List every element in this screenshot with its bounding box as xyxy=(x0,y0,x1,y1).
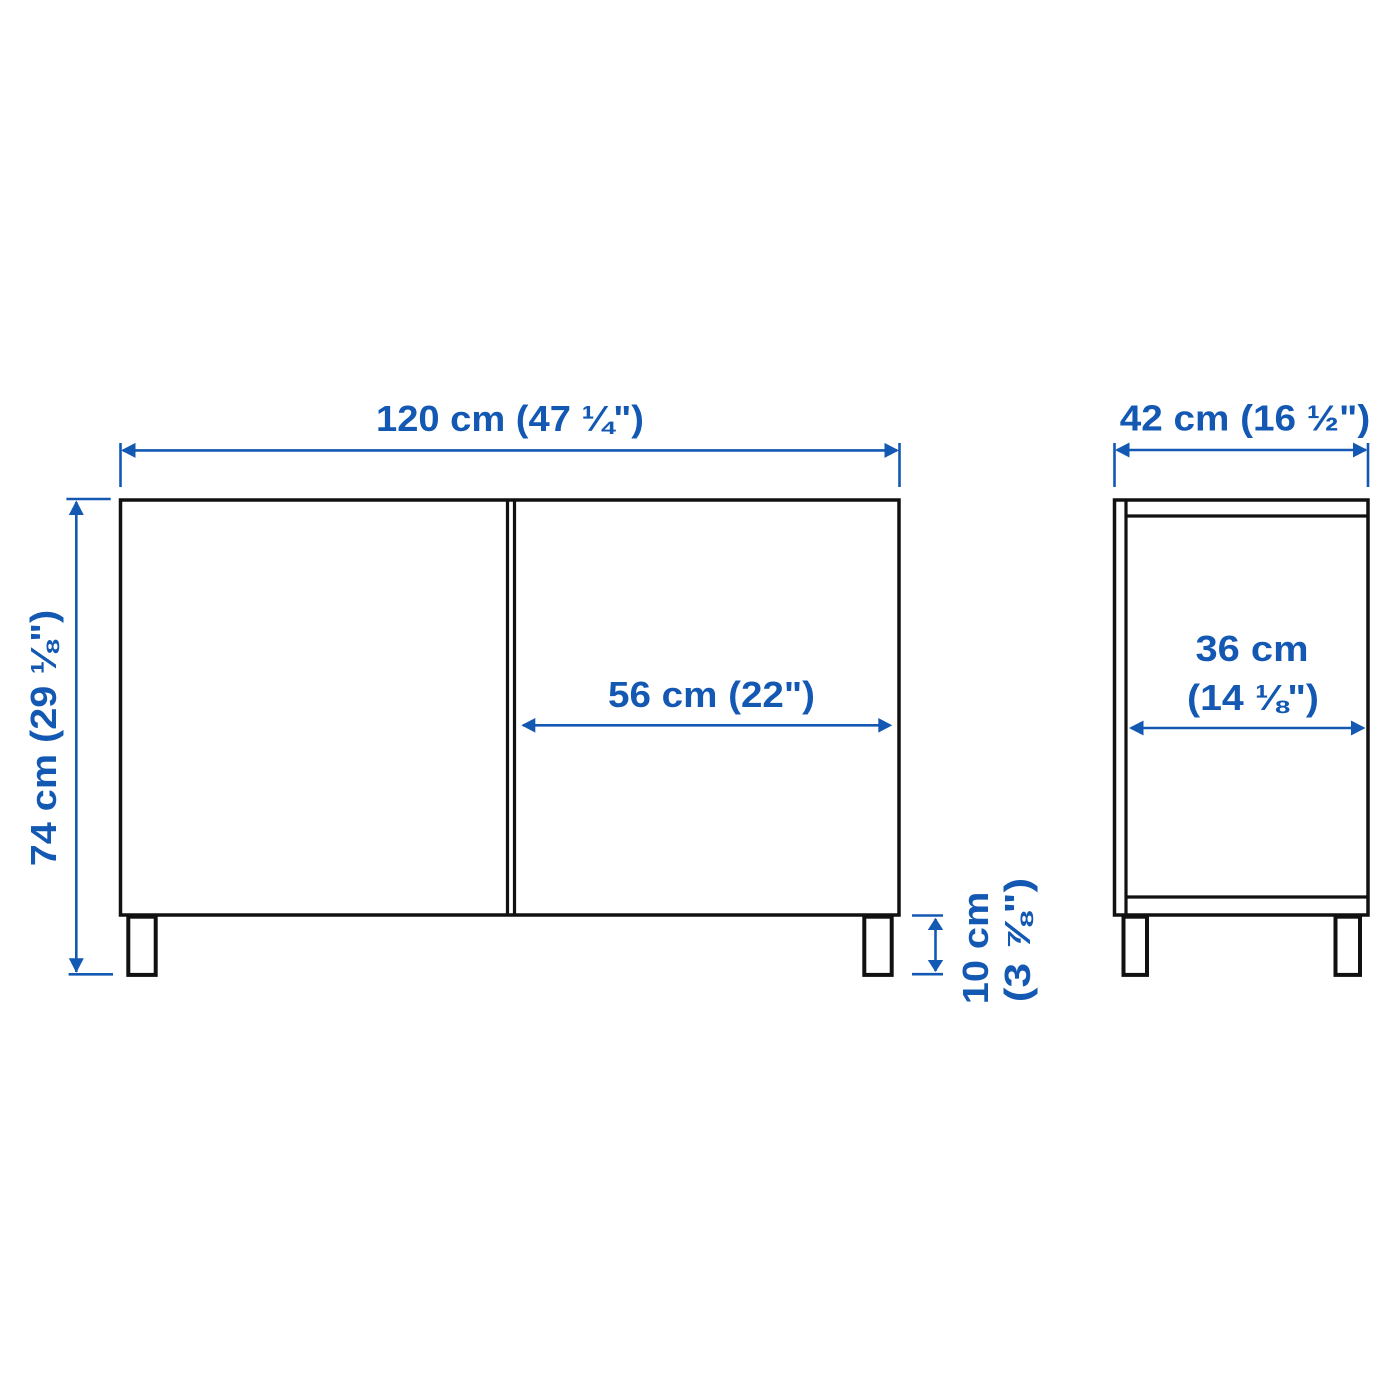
svg-text:(3 ⅞"): (3 ⅞") xyxy=(997,878,1038,1003)
svg-text:36 cm: 36 cm xyxy=(1196,628,1309,669)
svg-text:56 cm (22"): 56 cm (22") xyxy=(608,674,815,715)
svg-text:42 cm (16 ½"): 42 cm (16 ½") xyxy=(1120,398,1371,439)
svg-text:74 cm (29 ⅛"): 74 cm (29 ⅛") xyxy=(23,610,64,867)
svg-text:10 cm: 10 cm xyxy=(955,892,996,1005)
svg-text:(14 ⅛"): (14 ⅛") xyxy=(1187,677,1319,718)
svg-text:120 cm (47 ¼"): 120 cm (47 ¼") xyxy=(376,398,644,439)
